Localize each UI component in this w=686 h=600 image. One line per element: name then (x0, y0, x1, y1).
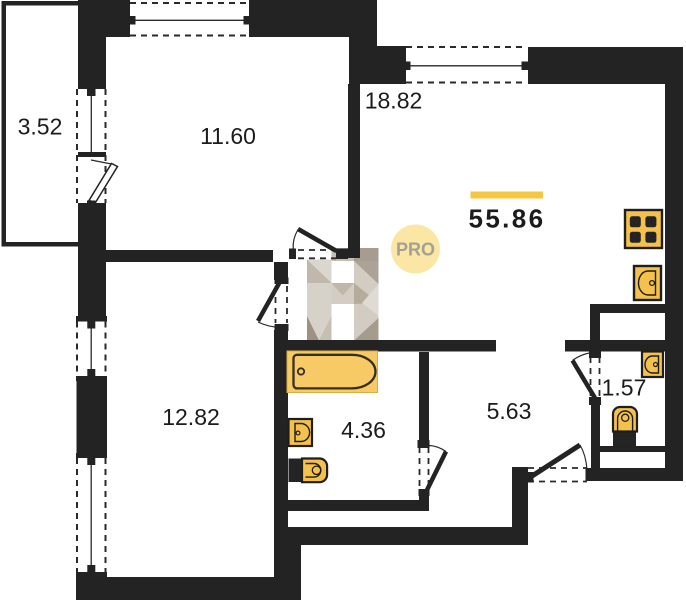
svg-text:55.86: 55.86 (468, 204, 545, 234)
svg-text:18.82: 18.82 (365, 88, 423, 114)
svg-text:12.82: 12.82 (162, 404, 220, 430)
svg-text:5.63: 5.63 (487, 398, 532, 424)
svg-text:PRO: PRO (396, 240, 435, 260)
svg-text:1.57: 1.57 (602, 375, 647, 401)
svg-text:3.52: 3.52 (18, 114, 63, 140)
svg-text:4.36: 4.36 (341, 417, 386, 443)
svg-text:11.60: 11.60 (200, 123, 256, 149)
